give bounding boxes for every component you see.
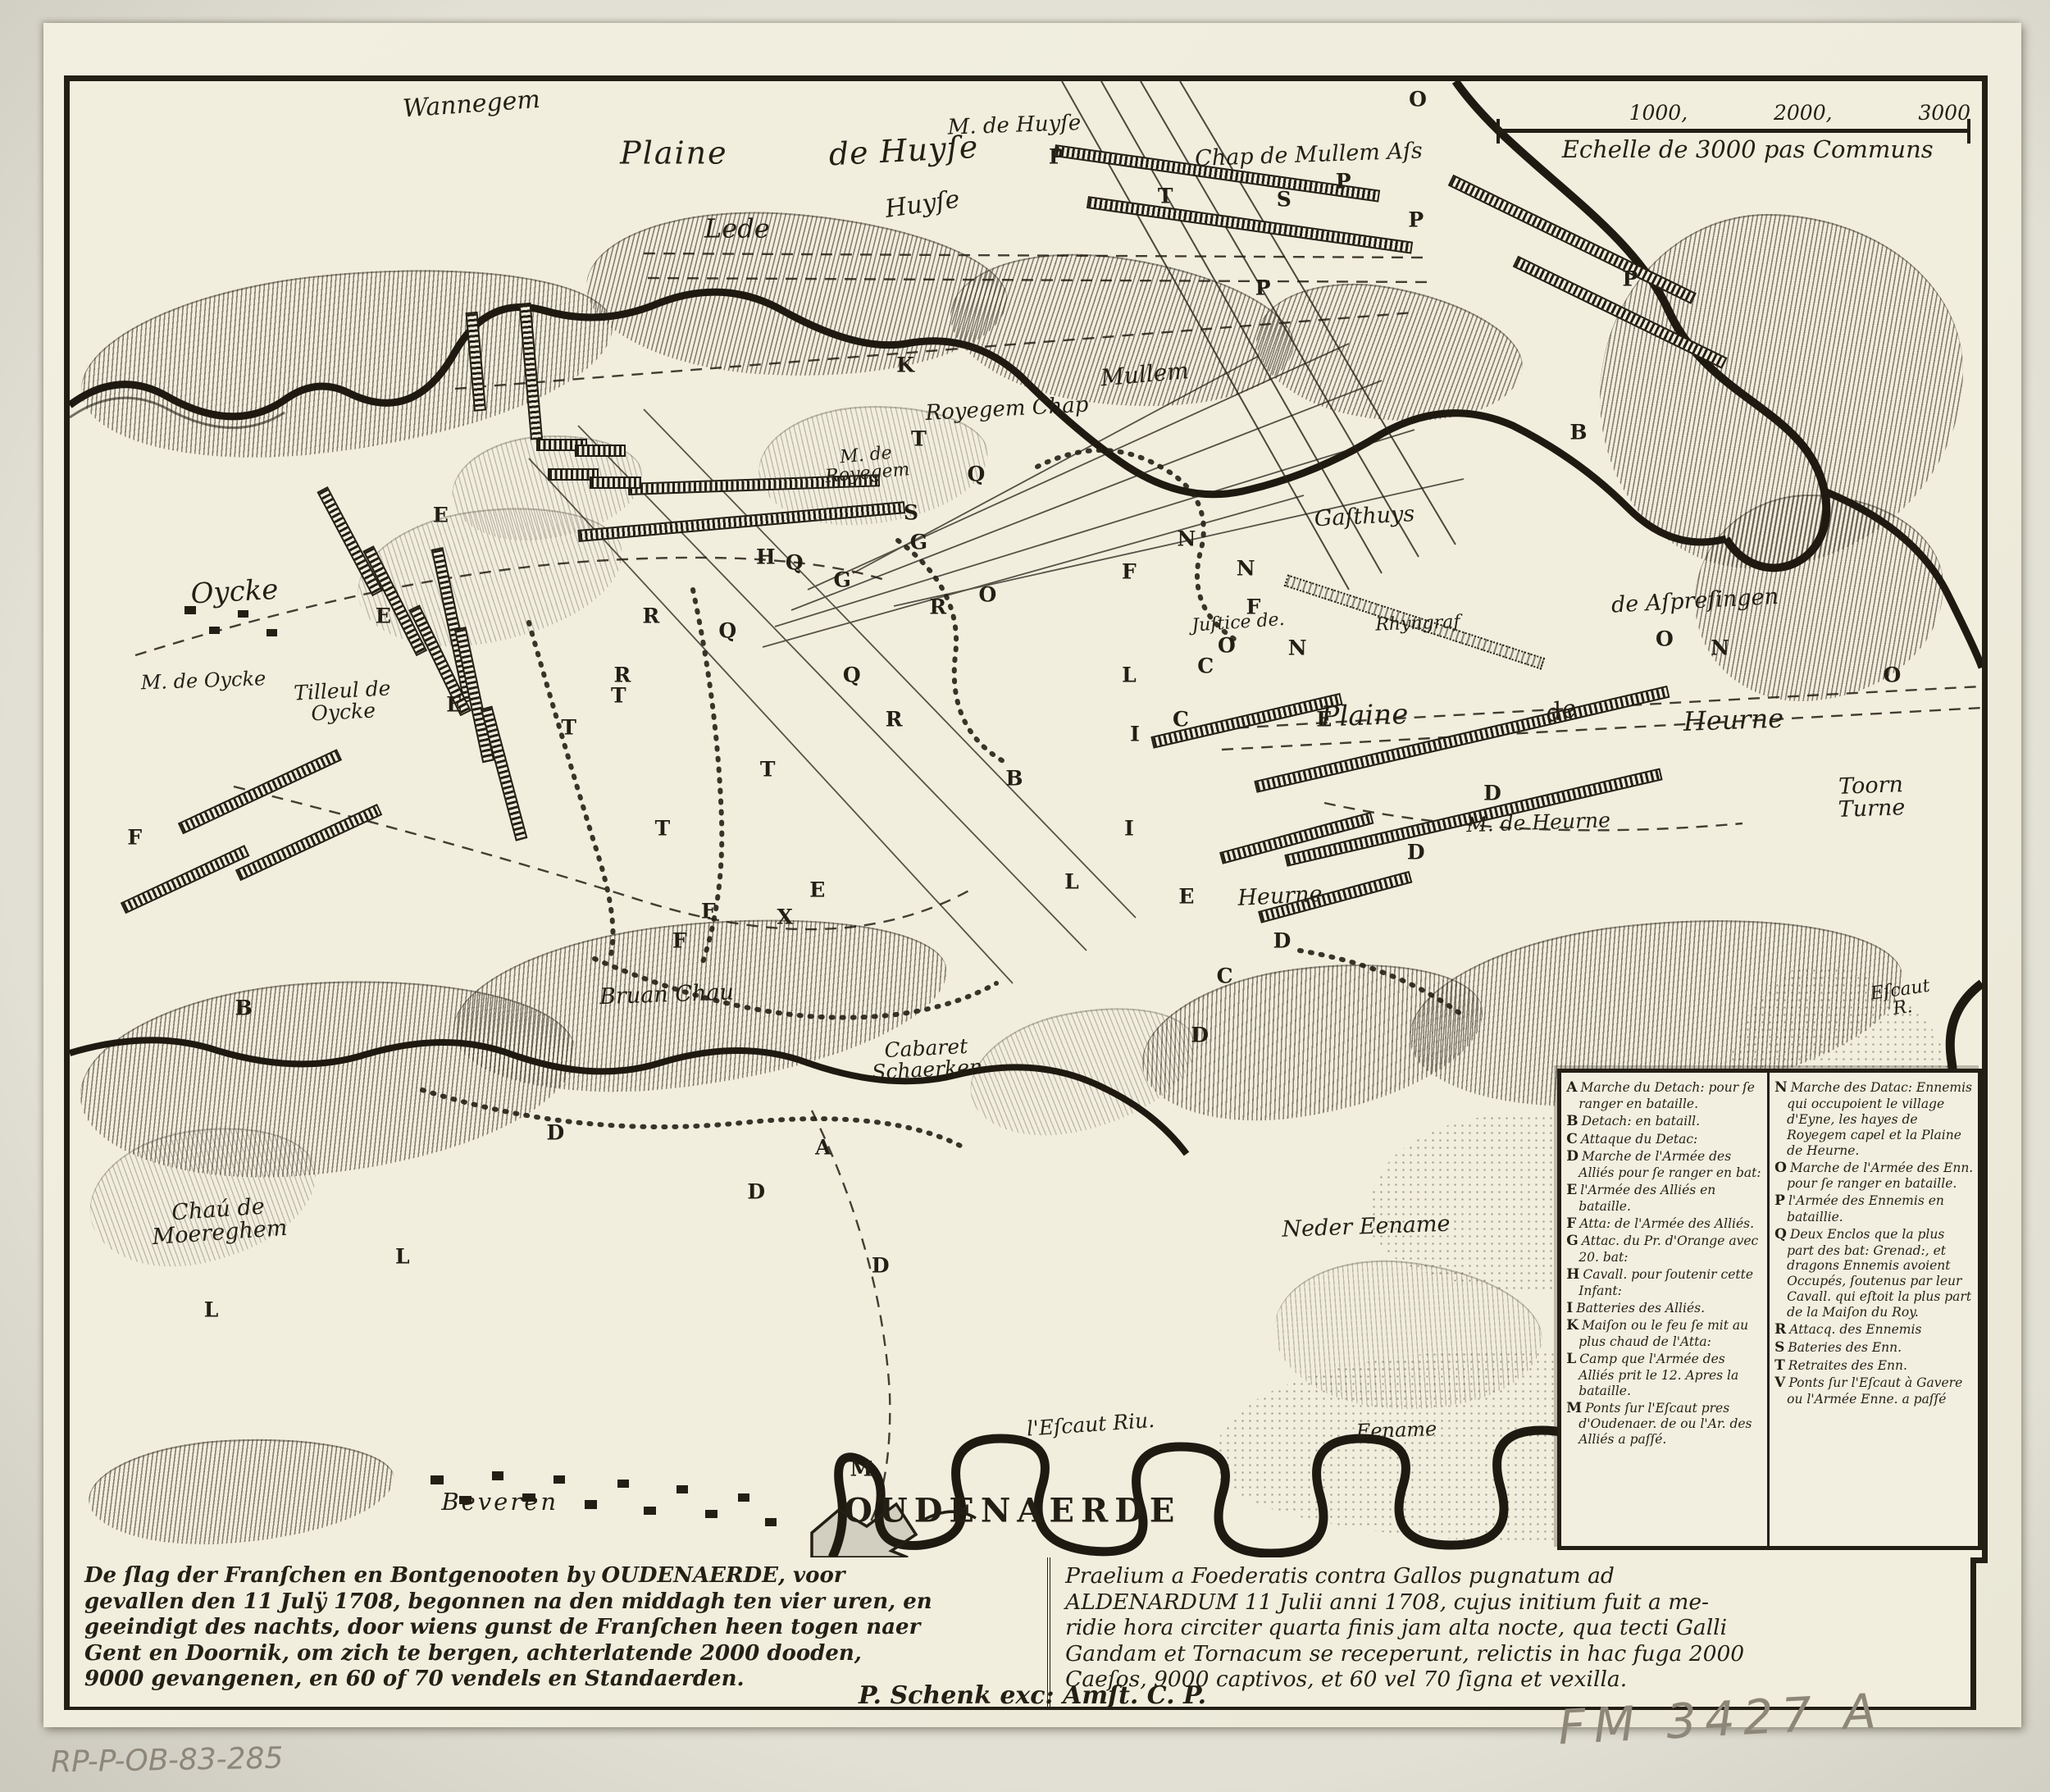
caption-line: Gandam et Tornacum se receperunt, relict…: [1065, 1641, 1959, 1667]
troop-marker-letter: C: [1217, 964, 1233, 987]
scale-bar-caption: Echelle de 3000 pas Communs: [1524, 135, 1970, 163]
legend-text: Bateries des Enn.: [1788, 1340, 1902, 1355]
map-label: Chaú de Moereghem: [150, 1193, 288, 1247]
caption-line: Praelium a Foederatis contra Gallos pugn…: [1065, 1563, 1959, 1589]
attack-lines: [529, 344, 1464, 983]
legend-text: Attac. du Pr. d'Orange avec 20. bat:: [1578, 1233, 1758, 1265]
legend-text: Marche des Datac: Ennemis qui occupoient…: [1787, 1080, 1972, 1157]
legend-column-left: AMarche du Detach: pour ſe ranger en bat…: [1561, 1073, 1770, 1546]
legend-key: B: [1566, 1113, 1581, 1129]
map-label: M. de Royegem: [823, 443, 911, 487]
legend-key: A: [1566, 1079, 1580, 1096]
map-label: Eename: [1356, 1419, 1437, 1442]
map-label: Lede: [704, 216, 770, 243]
map-label: OUDENAERDE: [844, 1495, 1181, 1529]
legend-entry: DMarche de l'Armée des Alliés pour ſe ra…: [1566, 1148, 1764, 1181]
legend-text: Retraites des Enn.: [1788, 1358, 1907, 1373]
map-label: Heurne: [1683, 705, 1783, 736]
map-label: Toorn Turne: [1837, 773, 1906, 821]
scale-tick-label: 1000,: [1629, 101, 1688, 125]
troop-marker-letter: T: [655, 816, 671, 840]
map-label: Heurne: [1237, 882, 1323, 910]
legend-key: O: [1774, 1160, 1790, 1176]
troop-marker-letter: L: [204, 1297, 219, 1321]
legend-entry: QDeux Enclos que la plus part des bat: G…: [1774, 1226, 1975, 1320]
troop-marker-letter: G: [833, 568, 850, 592]
map-label: Rhyngraf: [1375, 613, 1460, 635]
legend-key: L: [1566, 1351, 1579, 1367]
troop-marker-letter: Q: [843, 663, 861, 686]
troop-marker-letter: X: [777, 905, 792, 928]
legend-key: T: [1774, 1357, 1788, 1374]
troop-marker-letter: N: [1237, 557, 1255, 581]
map-label: Neder Eename: [1282, 1212, 1451, 1241]
legend-key: F: [1566, 1215, 1579, 1232]
handwritten-inventory-number: RP-P-OB-83-285: [51, 1742, 284, 1780]
troop-marker-letter: O: [1409, 87, 1427, 111]
legend-entry: VPonts ſur l'Eſcaut à Gavere ou l'Armée …: [1774, 1375, 1975, 1407]
troop-marker-letter: E: [809, 878, 825, 902]
caption-line: Gent en Doornik, om zich te bergen, acht…: [84, 1641, 1036, 1667]
troop-marker-letter: T: [561, 716, 576, 740]
legend-box: AMarche du Detach: pour ſe ranger en bat…: [1557, 1069, 1982, 1550]
legend-key: E: [1566, 1182, 1580, 1198]
legend-text: Detach: en bataill.: [1582, 1114, 1700, 1129]
troop-marker-letter: K: [896, 353, 914, 376]
troop-marker-letter: P: [1255, 276, 1271, 300]
legend-text: Cavall. pour ſoutenir cette Infant:: [1578, 1267, 1753, 1298]
legend-text: Camp que l'Armée des Alliés prit le 12. …: [1578, 1352, 1738, 1398]
legend-text: l'Armée des Alliés en bataille.: [1578, 1183, 1715, 1214]
legend-key: G: [1566, 1233, 1582, 1249]
troop-marker-letter: P: [1336, 170, 1351, 194]
legend-key: R: [1774, 1321, 1789, 1338]
legend-key: P: [1774, 1192, 1788, 1209]
legend-entry: Pl'Armée des Ennemis en bataillie.: [1774, 1192, 1975, 1225]
troop-marker-letter: T: [611, 683, 626, 707]
troop-marker-letter: R: [643, 604, 660, 627]
legend-key: Q: [1774, 1226, 1790, 1243]
legend-entry: FAtta: de l'Armée des Alliés.: [1566, 1215, 1764, 1233]
troop-marker-letter: L: [1064, 869, 1079, 893]
troop-marker-letter: F: [1122, 559, 1137, 583]
troop-marker-letter: I: [1124, 816, 1134, 840]
map-label: de: [1544, 696, 1579, 727]
map-label: Oycke: [189, 576, 279, 609]
legend-entry: KMaiſon ou le feu ſe mit au plus chaud d…: [1566, 1317, 1764, 1350]
troop-marker-letter: Q: [718, 618, 736, 642]
troop-marker-letter: D: [1191, 1023, 1209, 1046]
troop-marker-letter: F: [701, 899, 716, 923]
legend-text: Deux Enclos que la plus part des bat: Gr…: [1787, 1227, 1971, 1320]
legend-text: l'Armée des Ennemis en bataillie.: [1787, 1193, 1944, 1224]
map-label: Plaine: [620, 138, 728, 170]
map-label: Bruan Chau: [599, 982, 734, 1009]
troop-marker-letter: P: [1408, 208, 1424, 232]
troop-marker-letter: R: [929, 595, 946, 618]
map-label: de Huyſe: [828, 130, 979, 170]
legend-entry: GAttac. du Pr. d'Orange avec 20. bat:: [1566, 1233, 1764, 1265]
troop-marker-letter: T: [760, 757, 776, 781]
scale-bar-line: [1496, 129, 1970, 133]
troop-marker-letter: S: [1277, 188, 1291, 212]
legend-key: V: [1774, 1375, 1788, 1391]
troop-marker-letter: N: [1177, 527, 1196, 551]
map-label: Gaſthuys: [1314, 503, 1415, 531]
map-frame: PPPPPTTTTTTSSKOOOONNNNQQQQGGHEEEEEERRRRI…: [64, 75, 1988, 1563]
legend-entry: CAttaque du Detac:: [1566, 1131, 1764, 1148]
legend-column-right: NMarche des Datac: Ennemis qui occupoien…: [1770, 1073, 1978, 1546]
legend-entry: MPonts ſur l'Eſcaut pres d'Oudenaer. de …: [1566, 1400, 1764, 1448]
legend-text: Marche de l'Armée des Enn. pour ſe range…: [1787, 1160, 1973, 1192]
troop-marker-letter: D: [546, 1120, 564, 1144]
troop-marker-letter: H: [756, 545, 776, 568]
caption-line: ALDENARDUM 11 Julii anni 1708, cujus ini…: [1065, 1589, 1959, 1616]
legend-text: Ponts ſur l'Eſcaut à Gavere ou l'Armée E…: [1787, 1375, 1962, 1407]
caption-line: ridie hora circiter quarta finis jam alt…: [1065, 1615, 1959, 1641]
troop-marker-letter: R: [614, 663, 631, 686]
legend-entry: OMarche de l'Armée des Enn. pour ſe rang…: [1774, 1160, 1975, 1192]
caption-line: De ſlag der Franſchen en Bontgenooten by…: [84, 1563, 1036, 1589]
troop-marker-letter: O: [978, 583, 996, 607]
troop-formation-bar: [575, 445, 626, 457]
troop-marker-letter: E: [433, 504, 449, 527]
troop-marker-letter: Q: [786, 550, 804, 574]
legend-key: D: [1566, 1148, 1582, 1165]
troop-marker-letter: D: [872, 1253, 890, 1277]
troop-marker-letter: D: [1273, 928, 1291, 952]
legend-key: K: [1566, 1317, 1582, 1334]
troop-formation-bar: [590, 476, 640, 489]
troop-marker-letter: T: [1158, 185, 1173, 208]
troop-marker-letter: D: [747, 1179, 765, 1203]
legend-entry: SBateries des Enn.: [1774, 1339, 1975, 1357]
scanned-engraving-page: PPPPPTTTTTTSSKOOOONNNNQQQQGGHEEEEEERRRRI…: [0, 0, 2050, 1792]
troop-marker-letter: B: [1569, 421, 1587, 445]
legend-text: Attaque du Detac:: [1581, 1132, 1697, 1147]
troop-marker-letter: B: [235, 996, 253, 1020]
legend-entry: BDetach: en bataill.: [1566, 1113, 1764, 1130]
troop-marker-letter: P: [1049, 144, 1064, 168]
troop-marker-letter: R: [886, 707, 903, 731]
legend-key: I: [1566, 1300, 1576, 1316]
troop-marker-letter: O: [1884, 663, 1902, 686]
troop-marker-letter: A: [815, 1135, 831, 1159]
legend-text: Ponts ſur l'Eſcaut pres d'Oudenaer. de o…: [1578, 1401, 1752, 1448]
legend-entry: RAttacq. des Ennemis: [1774, 1321, 1975, 1338]
legend-text: Batteries des Alliés.: [1576, 1301, 1705, 1316]
legend-entry: HCavall. pour ſoutenir cette Infant:: [1566, 1266, 1764, 1299]
troop-marker-letter: C: [1197, 654, 1214, 677]
troop-marker-letter: F: [127, 825, 142, 849]
map-label: Beveren: [441, 1491, 558, 1516]
scale-bar-ticks: 1000,2000,3000: [1496, 101, 1970, 125]
legend-text: Atta: de l'Armée des Alliés.: [1579, 1216, 1754, 1231]
troop-marker-letter: L: [1122, 663, 1137, 686]
troop-marker-letter: D: [1483, 781, 1501, 805]
troop-marker-letter: D: [1407, 840, 1425, 864]
legend-text: Attacq. des Ennemis: [1789, 1322, 1921, 1337]
troop-marker-letter: Q: [967, 462, 985, 486]
scale-tick-label: 3000: [1918, 101, 1970, 125]
troop-marker-letter: I: [1130, 722, 1140, 746]
legend-text: Maiſon ou le feu ſe mit au plus chaud de…: [1578, 1318, 1748, 1349]
legend-entry: AMarche du Detach: pour ſe ranger en bat…: [1566, 1079, 1764, 1112]
troop-marker-letter: T: [911, 426, 927, 450]
troop-marker-letter: L: [395, 1244, 410, 1268]
troop-marker-letter: N: [1711, 636, 1729, 660]
river-middle-stream: [70, 1040, 1187, 1154]
legend-entry: LCamp que l'Armée des Alliés prit le 12.…: [1566, 1351, 1764, 1399]
caption-line: gevallen den 11 Julÿ 1708, begonnen na d…: [84, 1589, 1036, 1616]
caption-line: geeindigt des nachts, door wiens gunst d…: [84, 1615, 1036, 1641]
troop-marker-letter: S: [904, 500, 918, 524]
map-label: Plaine: [1320, 700, 1409, 732]
troop-marker-letter: F: [672, 928, 687, 952]
map-label: M. de Oycke: [141, 668, 266, 693]
map-label: Cabaret Schaerken: [870, 1035, 982, 1083]
troop-marker-letter: E: [376, 604, 391, 627]
legend-entry: El'Armée des Alliés en bataille.: [1566, 1182, 1764, 1215]
legend-entry: IBatteries des Alliés.: [1566, 1300, 1764, 1317]
legend-key: C: [1566, 1131, 1581, 1147]
troop-marker-letter: E: [446, 692, 462, 716]
legend-key: S: [1774, 1339, 1788, 1356]
troop-marker-letter: O: [1218, 633, 1236, 657]
legend-key: M: [1566, 1400, 1585, 1416]
legend-key: H: [1566, 1266, 1583, 1283]
legend-key: N: [1774, 1079, 1791, 1096]
legend-entry: TRetraites des Enn.: [1774, 1357, 1975, 1375]
troop-marker-letter: N: [1288, 636, 1307, 660]
troop-marker-letter: C: [1173, 707, 1189, 731]
troop-marker-letter: G: [910, 530, 927, 554]
legend-text: Marche du Detach: pour ſe ranger en bata…: [1578, 1080, 1755, 1111]
troop-marker-letter: M: [850, 1457, 873, 1481]
troop-marker-letter: E: [1178, 884, 1194, 908]
troop-marker-letter: O: [1656, 627, 1674, 651]
legend-entry: NMarche des Datac: Ennemis qui occupoien…: [1774, 1079, 1975, 1158]
map-label: Tilleul de Oycke: [294, 677, 393, 724]
scale-bar: 1000,2000,3000 Echelle de 3000 pas Commu…: [1496, 96, 1970, 157]
legend-text: Marche de l'Armée des Alliés pour ſe ran…: [1578, 1149, 1761, 1180]
troop-marker-letter: P: [1623, 267, 1638, 291]
map-label: M. de Heurne: [1466, 809, 1611, 836]
scale-tick-label: 2000,: [1774, 101, 1833, 125]
troop-marker-letter: B: [1005, 766, 1023, 790]
paper-sheet: PPPPPTTTTTTSSKOOOONNNNQQQQGGHEEEEEERRRRI…: [43, 23, 2021, 1727]
